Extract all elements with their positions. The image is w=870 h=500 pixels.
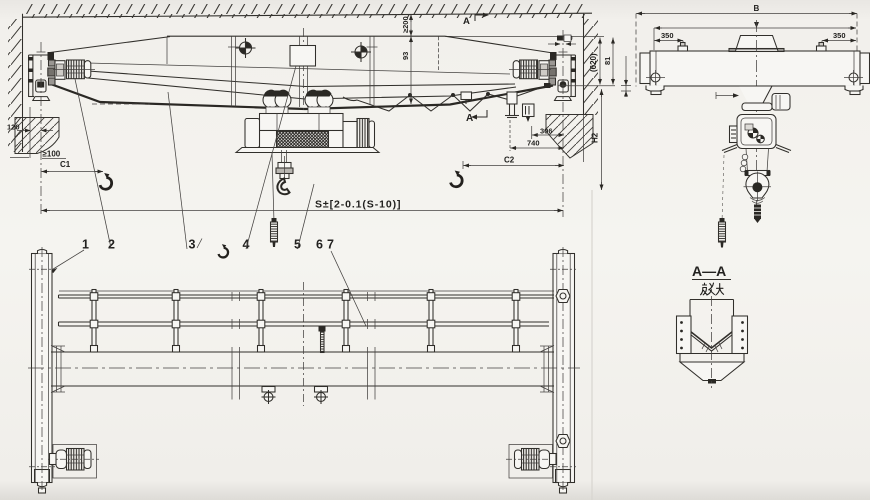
svg-text:A: A: [463, 16, 470, 27]
svg-text:(620): (620): [589, 53, 598, 72]
svg-text:B: B: [754, 4, 760, 13]
svg-text:C2: C2: [504, 156, 515, 165]
svg-text:H2: H2: [591, 132, 600, 143]
svg-text:306: 306: [540, 127, 553, 136]
svg-text:7: 7: [327, 238, 334, 252]
svg-text:S±[2-0.1(S-10)]: S±[2-0.1(S-10)]: [315, 199, 401, 211]
svg-text:≥100: ≥100: [43, 150, 61, 159]
svg-text:A—A: A—A: [692, 263, 726, 279]
svg-text:≥200: ≥200: [401, 16, 410, 33]
svg-text:1: 1: [82, 238, 89, 252]
svg-text:740: 740: [527, 139, 540, 148]
svg-text:A: A: [466, 113, 473, 124]
svg-text:6: 6: [316, 238, 323, 252]
svg-text:3: 3: [189, 238, 196, 252]
svg-text:C1: C1: [60, 160, 71, 169]
svg-text:350: 350: [833, 31, 846, 40]
svg-text:81: 81: [603, 57, 612, 65]
svg-text:93: 93: [401, 52, 410, 60]
svg-text:350: 350: [661, 31, 674, 40]
